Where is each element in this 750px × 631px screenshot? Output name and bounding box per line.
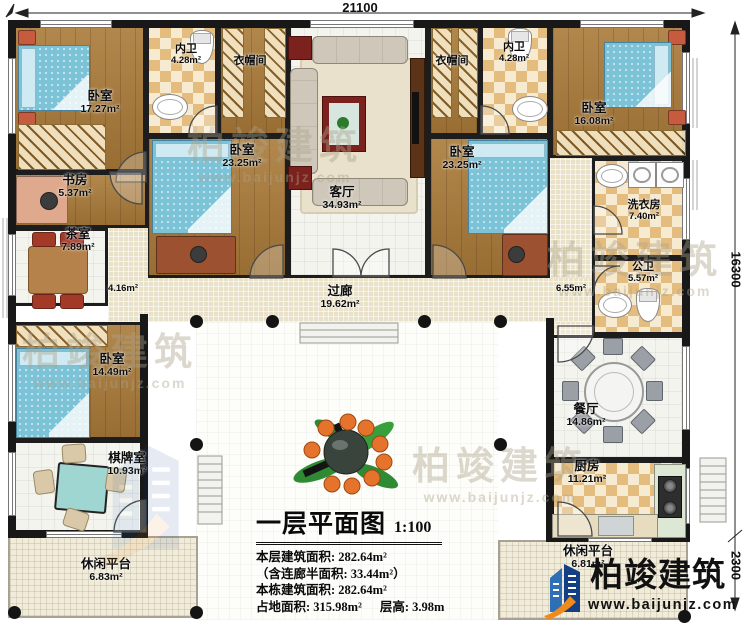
label-cloakroom-right: 衣帽间 (418, 56, 486, 68)
column (494, 438, 507, 451)
room-area: 4.28m² (484, 54, 544, 64)
room-name: 餐厅 (573, 402, 598, 416)
window (8, 452, 16, 516)
room-area: 11.21m² (552, 474, 622, 485)
room-area: 10.93m² (88, 466, 166, 477)
wall-rightwing-west (546, 318, 554, 542)
room-area: 14.49m² (78, 367, 146, 378)
label-bedroom-center-left: 卧室23.25m² (204, 144, 280, 169)
chair (32, 294, 56, 309)
chair (562, 381, 579, 401)
label-bath-ensuite-right: 内卫4.28m² (484, 42, 544, 64)
room-area: 14.86m² (550, 417, 622, 428)
label-bedroom-center-right: 卧室23.25m² (424, 146, 500, 171)
label-kitchen: 厨房11.21m² (552, 460, 622, 485)
room-name: 棋牌室 (108, 451, 146, 465)
wardrobe (264, 28, 286, 118)
label-bedroom-mid-left: 卧室14.49m² (78, 353, 146, 378)
label-dining-room: 餐厅14.86m² (550, 403, 622, 428)
nightstand (668, 110, 686, 125)
room-name: 卧室 (581, 101, 606, 115)
column (8, 606, 21, 619)
nightstand (18, 30, 36, 45)
wardrobe (432, 28, 452, 118)
chair (32, 469, 55, 496)
room-area: 34.93m² (300, 200, 384, 211)
window (682, 346, 690, 430)
window (8, 344, 16, 422)
sink (512, 96, 548, 122)
room-name: 休闲平台 (81, 557, 131, 571)
label-corridor: 过廊19.62m² (308, 285, 372, 310)
wardrobe (16, 325, 108, 347)
room-area: 17.27m² (58, 104, 142, 115)
dimension-right-lower: 2300 (729, 538, 744, 594)
side-table (288, 36, 312, 60)
window (46, 531, 122, 538)
label-hall-left: 4.16m² (94, 284, 152, 294)
room-area: 6.83m² (60, 572, 152, 583)
sofa (312, 36, 408, 64)
room-area: 5.37m² (42, 188, 108, 199)
plan-scale: 1:100 (394, 519, 431, 536)
room-name: 卧室 (229, 143, 254, 157)
sofa (290, 68, 318, 174)
dimension-top: 21100 (320, 0, 400, 15)
stat-line: （含连廊半面积: 33.44m²） (256, 567, 496, 583)
label-hall-right: 6.55m² (544, 284, 598, 294)
room-area: 5.57m² (612, 274, 674, 284)
window (8, 234, 16, 296)
column (418, 315, 431, 328)
room-name: 公卫 (632, 261, 654, 273)
room-name: 过廊 (327, 284, 352, 298)
stove (658, 476, 682, 518)
room-area: 7.40m² (608, 212, 680, 222)
room-area: 19.62m² (308, 299, 372, 310)
stat-line: 占地面积: 315.98m²层高: 3.98m (256, 600, 496, 616)
room-name: 衣帽间 (436, 55, 469, 67)
column (494, 315, 507, 328)
room-name: 卧室 (449, 145, 474, 159)
title-row: 一层平面图1:100 (256, 504, 442, 545)
brand-logo-url: www.baijunjz.com (588, 597, 737, 613)
label-chess-room: 棋牌室10.93m² (88, 452, 166, 477)
room-area: 23.25m² (424, 160, 500, 171)
window (40, 20, 112, 28)
chair (603, 338, 623, 355)
plant-decor (337, 117, 349, 129)
label-bath-public: 公卫5.57m² (612, 262, 674, 284)
chair (190, 246, 207, 263)
tv (412, 92, 419, 144)
room-name: 厨房 (574, 459, 599, 473)
room-area: 7.89m² (44, 242, 112, 253)
label-laundry: 洗衣房7.40m² (608, 200, 680, 222)
washing-machine (628, 162, 656, 188)
column (190, 606, 203, 619)
stat-footprint: 占地面积: 315.98m² (256, 600, 362, 614)
room-name: 洗衣房 (628, 199, 661, 211)
chair (60, 294, 84, 309)
stat-line: 本层建筑面积: 282.64m² (256, 550, 496, 566)
label-cloakroom-left: 衣帽间 (214, 56, 286, 68)
label-bath-ensuite-left: 内卫4.28m² (158, 44, 214, 66)
wardrobe (458, 28, 478, 118)
label-platform-left: 休闲平台6.83m² (60, 558, 152, 583)
wardrobe (18, 124, 106, 170)
room-name: 内卫 (503, 41, 525, 53)
chair (61, 443, 86, 464)
window (580, 20, 664, 28)
sink (598, 292, 632, 318)
tea-table (28, 246, 88, 294)
plan-title: 一层平面图 (256, 511, 386, 538)
window (8, 58, 16, 134)
wardrobe (222, 28, 244, 118)
washing-machine (656, 162, 684, 188)
column (190, 438, 203, 451)
label-bedroom-top-left: 卧室17.27m² (58, 90, 142, 115)
room-name: 客厅 (329, 185, 354, 199)
sink (152, 94, 188, 120)
column (190, 315, 203, 328)
room-name: 卧室 (99, 352, 124, 366)
title-block: 一层平面图1:100 本层建筑面积: 282.64m² （含连廊半面积: 33.… (256, 504, 496, 615)
chair (508, 246, 525, 263)
stat-line: 本栋建筑面积: 282.64m² (256, 583, 496, 599)
wardrobe (556, 130, 686, 156)
chair (646, 381, 663, 401)
room-name: 衣帽间 (234, 55, 267, 67)
stat-floor-height: 层高: 3.98m (380, 600, 445, 614)
column (266, 315, 279, 328)
dimension-right-upper: 16300 (729, 240, 744, 300)
brand-logo-text: 柏竣建筑 (590, 558, 726, 591)
room-area: 4.16m² (94, 284, 152, 294)
room-name: 内卫 (175, 43, 197, 55)
room-name: 茶室 (65, 227, 90, 241)
floor-plan: 柏竣建筑 www.baijunjz.com 柏竣建筑 www.baijunjz.… (0, 0, 750, 631)
sink (596, 164, 628, 188)
label-living-room: 客厅34.93m² (300, 186, 384, 211)
kitchen-sink (598, 516, 634, 536)
window (310, 20, 414, 28)
room-area: 23.25m² (204, 158, 280, 169)
bed (604, 42, 672, 108)
label-study: 书房5.37m² (42, 174, 108, 199)
room-area: 6.55m² (544, 284, 598, 294)
label-tea-room: 茶室7.89m² (44, 228, 112, 253)
room-area: 16.08m² (556, 116, 632, 127)
room-name: 卧室 (87, 89, 112, 103)
wall-leftwing-east (140, 314, 148, 538)
room-area: 4.28m² (158, 56, 214, 66)
chair (603, 426, 623, 443)
label-bedroom-top-right: 卧室16.08m² (556, 102, 632, 127)
room-name: 书房 (62, 173, 87, 187)
